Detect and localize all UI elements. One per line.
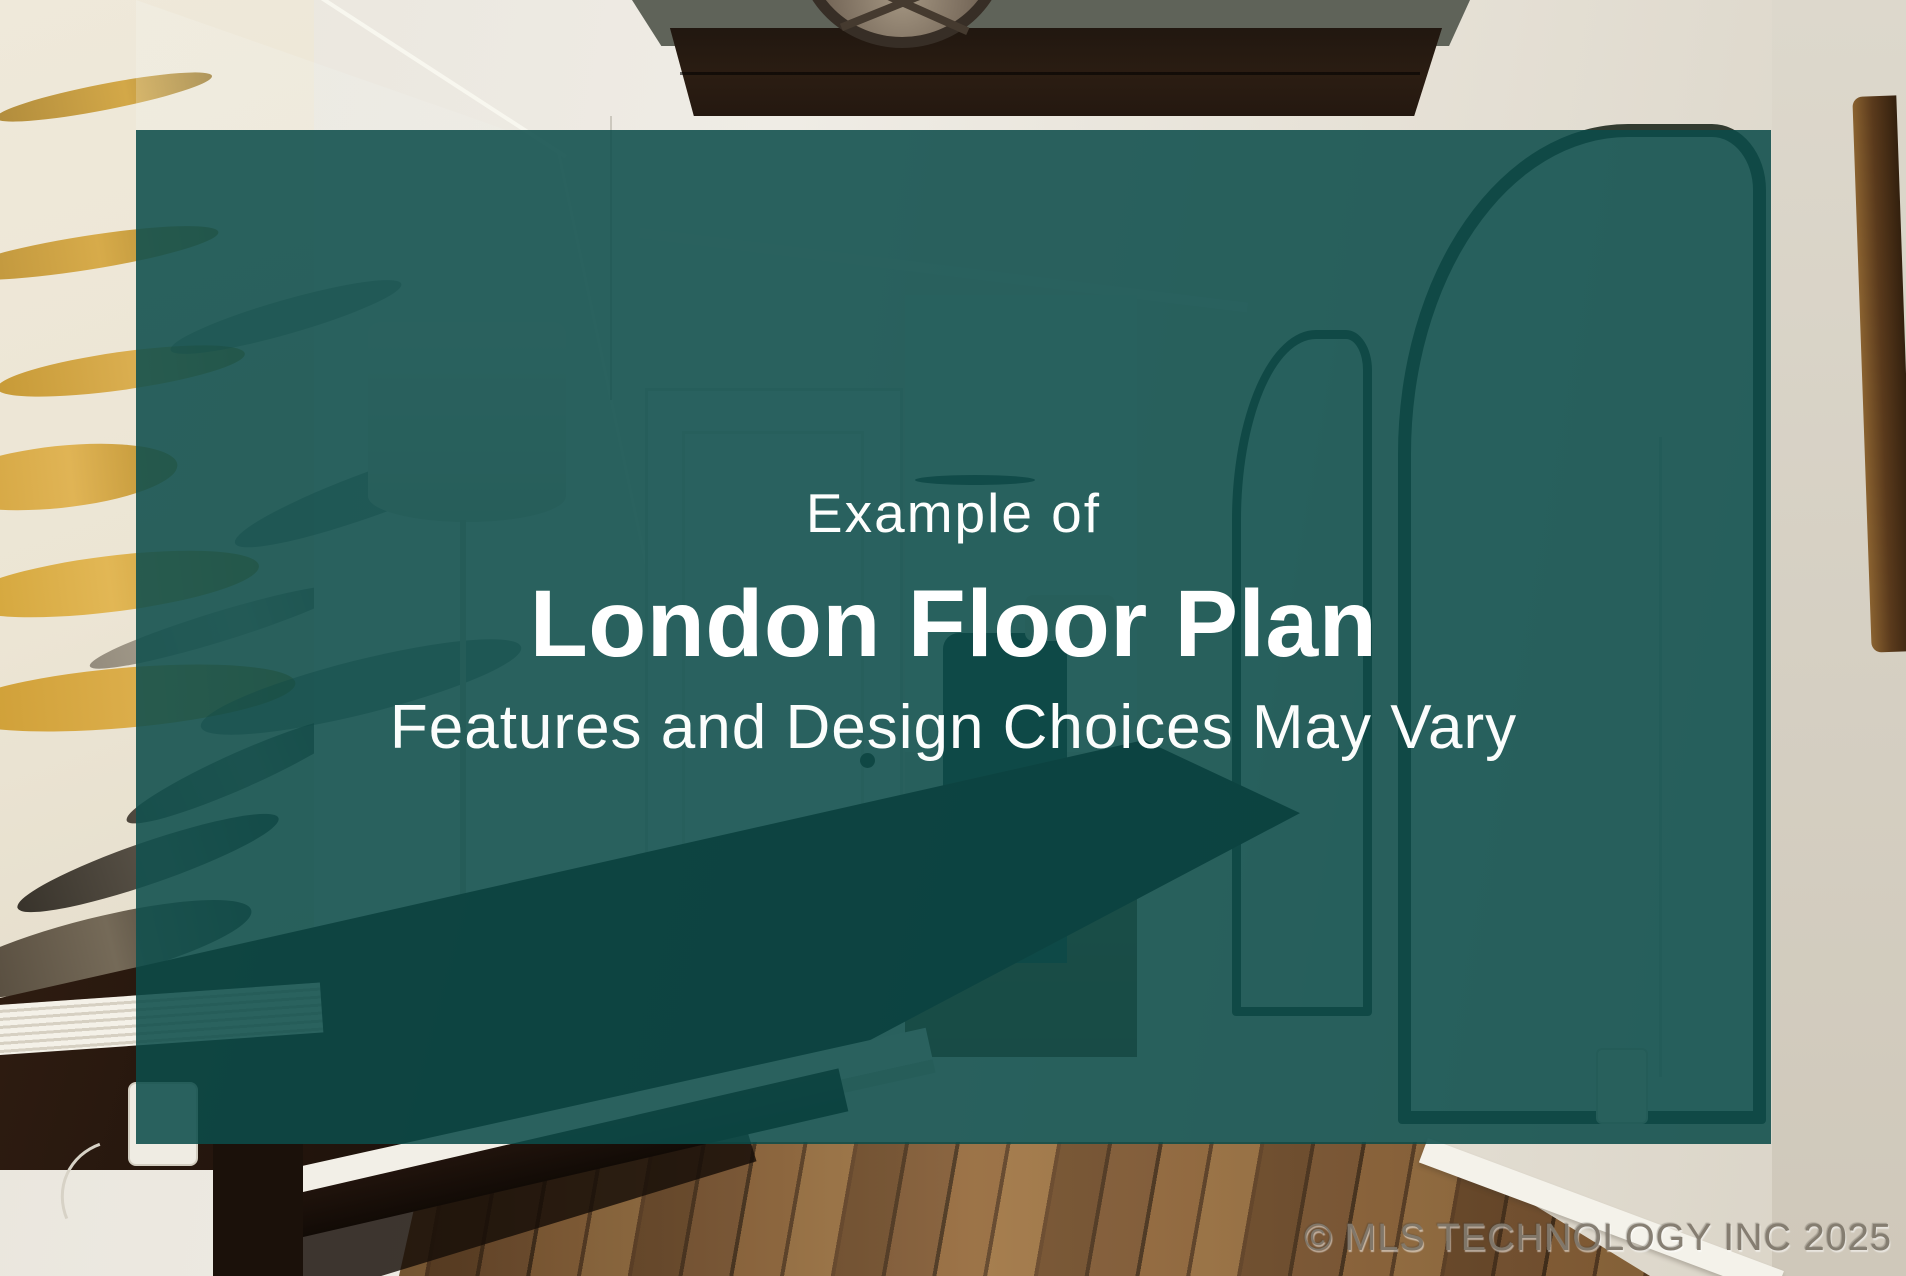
teal-overlay: Example of London Floor Plan Features an… [136,130,1771,1144]
copyright-watermark: © MLS TECHNOLOGY INC 2025 [1304,1217,1892,1260]
eyebrow-text: Example of [806,482,1101,545]
beam-seam-line [680,72,1420,75]
title-text: London Floor Plan [530,571,1378,677]
subtitle-text: Features and Design Choices May Vary [390,692,1517,763]
slide: Example of London Floor Plan Features an… [0,0,1906,1276]
table-leg [213,1143,303,1276]
